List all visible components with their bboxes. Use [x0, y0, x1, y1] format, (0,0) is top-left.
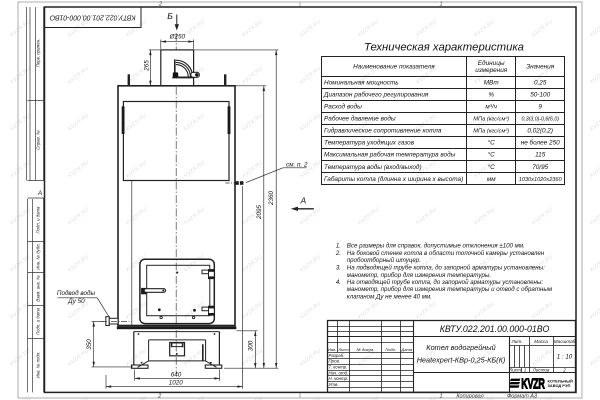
svg-text:2095: 2095 [256, 205, 263, 221]
svg-text:Пров.: Пров. [329, 359, 341, 364]
svg-text:°С: °С [488, 151, 496, 159]
svg-text:Лит.: Лит. [511, 339, 523, 344]
svg-text:Расход воды: Расход воды [324, 102, 362, 110]
svg-text:°С: °С [488, 163, 496, 171]
svg-text:Рабочее давление воды: Рабочее давление воды [324, 115, 396, 123]
svg-text:Н. контр.: Н. контр. [329, 376, 349, 381]
svg-text:Гидравлическое сопротивление к: Гидравлическое сопротивление котла [324, 127, 442, 135]
svg-text:Значения: Значения [526, 63, 554, 70]
svg-text:1: 1 [439, 393, 442, 399]
svg-text:Лист: Лист [337, 347, 349, 352]
svg-text:Наименование показателя: Наименование показателя [353, 63, 435, 70]
svg-text:Справ. №: Справ. № [36, 130, 41, 150]
svg-text:2: 2 [562, 368, 566, 373]
svg-text:Инв. № подл.: Инв. № подл. [36, 352, 41, 379]
svg-text:Утв.: Утв. [329, 382, 339, 387]
svg-text:Температура воды (вход/выход): Температура воды (вход/выход) [324, 163, 422, 171]
svg-text:МПа (кгс/см²): МПа (кгс/см²) [473, 129, 509, 135]
svg-text:№ докум.: № докум. [357, 347, 375, 352]
svg-text:50-100: 50-100 [530, 91, 550, 98]
svg-text:Разраб.: Разраб. [329, 353, 345, 358]
svg-text:Все размеры для справок, допус: Все размеры для справок, допустимые откл… [347, 243, 525, 250]
svg-text:Температура уходящих газов: Температура уходящих газов [324, 139, 415, 147]
svg-text:2.: 2. [335, 250, 341, 257]
svg-text:Взам. инв. №: Взам. инв. № [36, 275, 41, 302]
svg-text:Подп. и дата: Подп. и дата [36, 307, 41, 335]
svg-text:Лист: Лист [508, 368, 521, 373]
svg-text:Габариты котла (длинна х ширин: Габариты котла (длинна х ширина х высота… [324, 175, 463, 183]
svg-text:0,3(3,0)-0,6(6,0): 0,3(3,0)-0,6(6,0) [521, 117, 559, 123]
svg-text:2360: 2360 [268, 191, 275, 207]
svg-text:Единицы: Единицы [478, 59, 505, 67]
svg-text:1030х1020х2360: 1030х1020х2360 [519, 177, 563, 183]
svg-text:Нач. отд.: Нач. отд. [329, 370, 349, 375]
svg-text:3.: 3. [336, 265, 341, 272]
svg-text:0,25: 0,25 [534, 79, 547, 86]
svg-text:Инв. № дубл.: Инв. № дубл. [36, 243, 41, 269]
svg-text:Подп. и дата: Подп. и дата [36, 206, 41, 234]
svg-text:4.: 4. [336, 279, 341, 286]
svg-text:мм: мм [487, 176, 496, 183]
svg-text:КВТУ.022.201.00.000-01ВО: КВТУ.022.201.00.000-01ВО [440, 324, 550, 334]
svg-text:Копировал: Копировал [456, 393, 483, 399]
svg-text:Масса: Масса [534, 339, 548, 344]
svg-text:0,02(0,2): 0,02(0,2) [527, 128, 553, 135]
svg-text:Ø250: Ø250 [169, 34, 186, 41]
svg-text:А: А [37, 190, 42, 197]
svg-text:9: 9 [538, 103, 542, 110]
svg-text:265: 265 [144, 60, 151, 72]
svg-text:°С: °С [488, 139, 496, 147]
svg-text:%: % [488, 91, 494, 98]
svg-text:70/95: 70/95 [532, 164, 548, 171]
svg-text:манометр, прибор для измерения: манометр, прибор для измерения температу… [347, 286, 553, 293]
svg-text:МПа (кгс/см²): МПа (кгс/см²) [473, 117, 509, 123]
svg-text:Heatexpert-КВр-0,25-КБ(К): Heatexpert-КВр-0,25-КБ(К) [417, 356, 506, 365]
svg-text:350: 350 [86, 339, 93, 350]
svg-text:пробоотборный штуцер.: пробоотборный штуцер. [347, 257, 421, 264]
svg-text:м³/ч: м³/ч [485, 103, 497, 110]
svg-text:ЗАВОД РЭП: ЗАВОД РЭП [548, 383, 571, 388]
svg-text:Масштаб: Масштаб [554, 339, 576, 344]
svg-text:На боковой стенке котла в обла: На боковой стенке котла в области топочн… [347, 250, 545, 257]
svg-text:КВТУ.022.201.00.000-01ВО: КВТУ.022.201.00.000-01ВО [49, 13, 135, 20]
svg-text:клапаном Ду не менее 40 мм.: клапаном Ду не менее 40 мм. [347, 294, 432, 301]
svg-text:не более 250: не более 250 [521, 139, 560, 147]
svg-text:Листов: Листов [532, 368, 550, 373]
svg-text:2: 2 [157, 393, 161, 399]
svg-text:Ду 50: Ду 50 [67, 298, 85, 305]
svg-text:измерения: измерения [475, 67, 508, 74]
svg-text:На подводящей трубе котла, до: На подводящей трубе котла, до запорной а… [347, 265, 545, 272]
svg-text:Котел водогрейный: Котел водогрейный [426, 343, 495, 352]
svg-text:115: 115 [535, 152, 546, 159]
svg-text:1.: 1. [336, 243, 341, 250]
svg-text:МВт: МВт [484, 79, 500, 86]
svg-text:Изм.: Изм. [328, 347, 337, 352]
svg-text:KVZR: KVZR [521, 375, 545, 392]
svg-text:Максимальная рабочая температу: Максимальная рабочая температура воды [324, 151, 456, 159]
svg-text:1020: 1020 [169, 380, 184, 387]
svg-text:1 : 10: 1 : 10 [557, 354, 573, 361]
svg-text:300: 300 [247, 340, 254, 351]
svg-text:Формат А3: Формат А3 [507, 393, 538, 399]
svg-text:Номинальная мощность: Номинальная мощность [324, 79, 399, 86]
svg-text:1: 1 [524, 368, 527, 373]
svg-text:см. п. 2: см. п. 2 [286, 161, 308, 168]
svg-text:Техническая характеристика: Техническая характеристика [364, 42, 524, 54]
svg-text:Диапазон рабочего регулировани: Диапазон рабочего регулирования [323, 90, 429, 98]
svg-text:Т. контр.: Т. контр. [329, 365, 348, 370]
svg-text:А: А [299, 196, 306, 206]
svg-text:Б: Б [167, 11, 173, 21]
svg-text:Дата: Дата [400, 347, 412, 352]
svg-text:Подп.: Подп. [385, 347, 396, 352]
svg-text:Перв. примен.: Перв. примен. [36, 39, 41, 68]
svg-text:На отводящей трубе котла, до з: На отводящей трубе котла, до запорной ар… [347, 279, 544, 286]
svg-text:Подвод воды: Подвод воды [57, 289, 96, 297]
svg-text:640: 640 [171, 371, 182, 378]
